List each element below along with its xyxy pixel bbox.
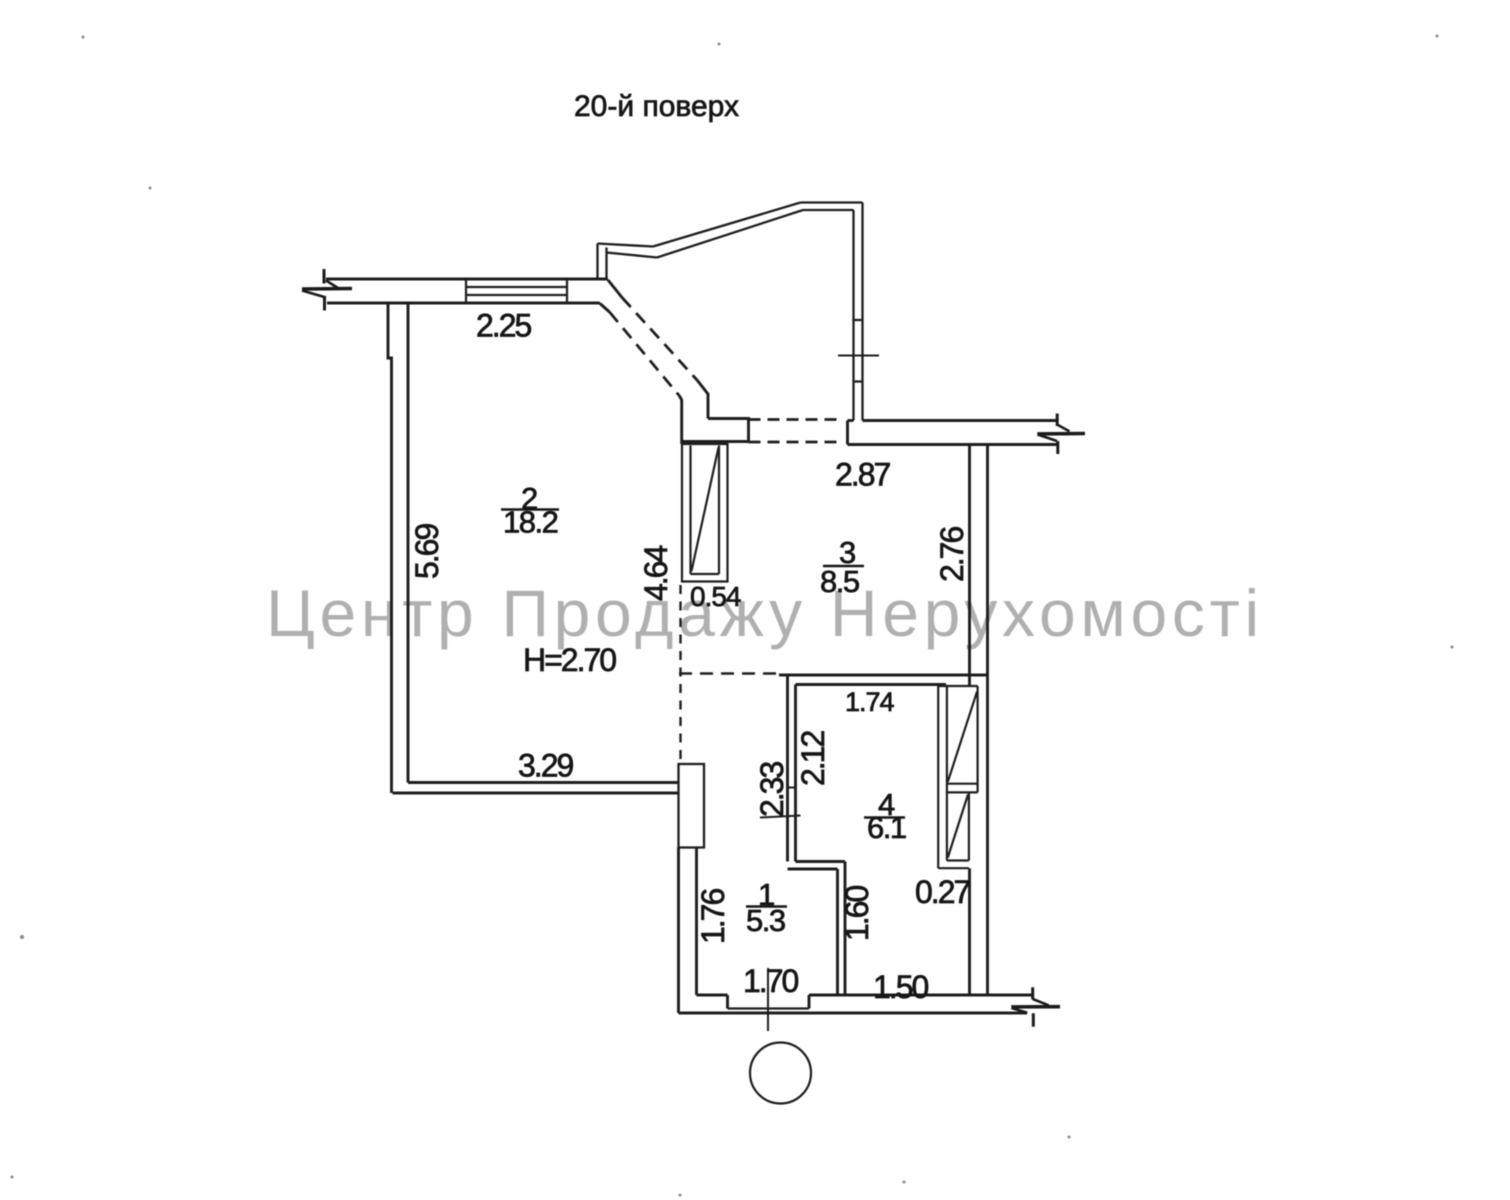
svg-text:0.54: 0.54 (690, 581, 741, 612)
svg-text:2.87: 2.87 (835, 457, 890, 493)
svg-text:Центр Продажу Нерухомості: Центр Продажу Нерухомості (266, 576, 1264, 650)
svg-text:20-й поверх: 20-й поверх (574, 90, 739, 123)
svg-text:4.64: 4.64 (638, 546, 674, 601)
svg-text:6.1: 6.1 (867, 810, 906, 845)
svg-text:H=2.70: H=2.70 (523, 642, 616, 678)
svg-text:2.33: 2.33 (754, 762, 790, 817)
svg-text:2.12: 2.12 (795, 731, 831, 786)
svg-text:2.76: 2.76 (934, 527, 970, 582)
svg-text:3.29: 3.29 (518, 748, 573, 784)
svg-text:1.76: 1.76 (695, 889, 731, 944)
svg-text:1.60: 1.60 (839, 886, 875, 941)
svg-text:1.74: 1.74 (845, 687, 895, 717)
svg-text:8.5: 8.5 (820, 564, 859, 599)
svg-text:1.50: 1.50 (873, 969, 928, 1005)
svg-text:2.25: 2.25 (476, 308, 531, 344)
svg-text:5.69: 5.69 (409, 524, 445, 579)
svg-text:1.70: 1.70 (743, 963, 798, 999)
svg-text:5.3: 5.3 (746, 903, 785, 938)
svg-text:0.27: 0.27 (915, 874, 970, 910)
